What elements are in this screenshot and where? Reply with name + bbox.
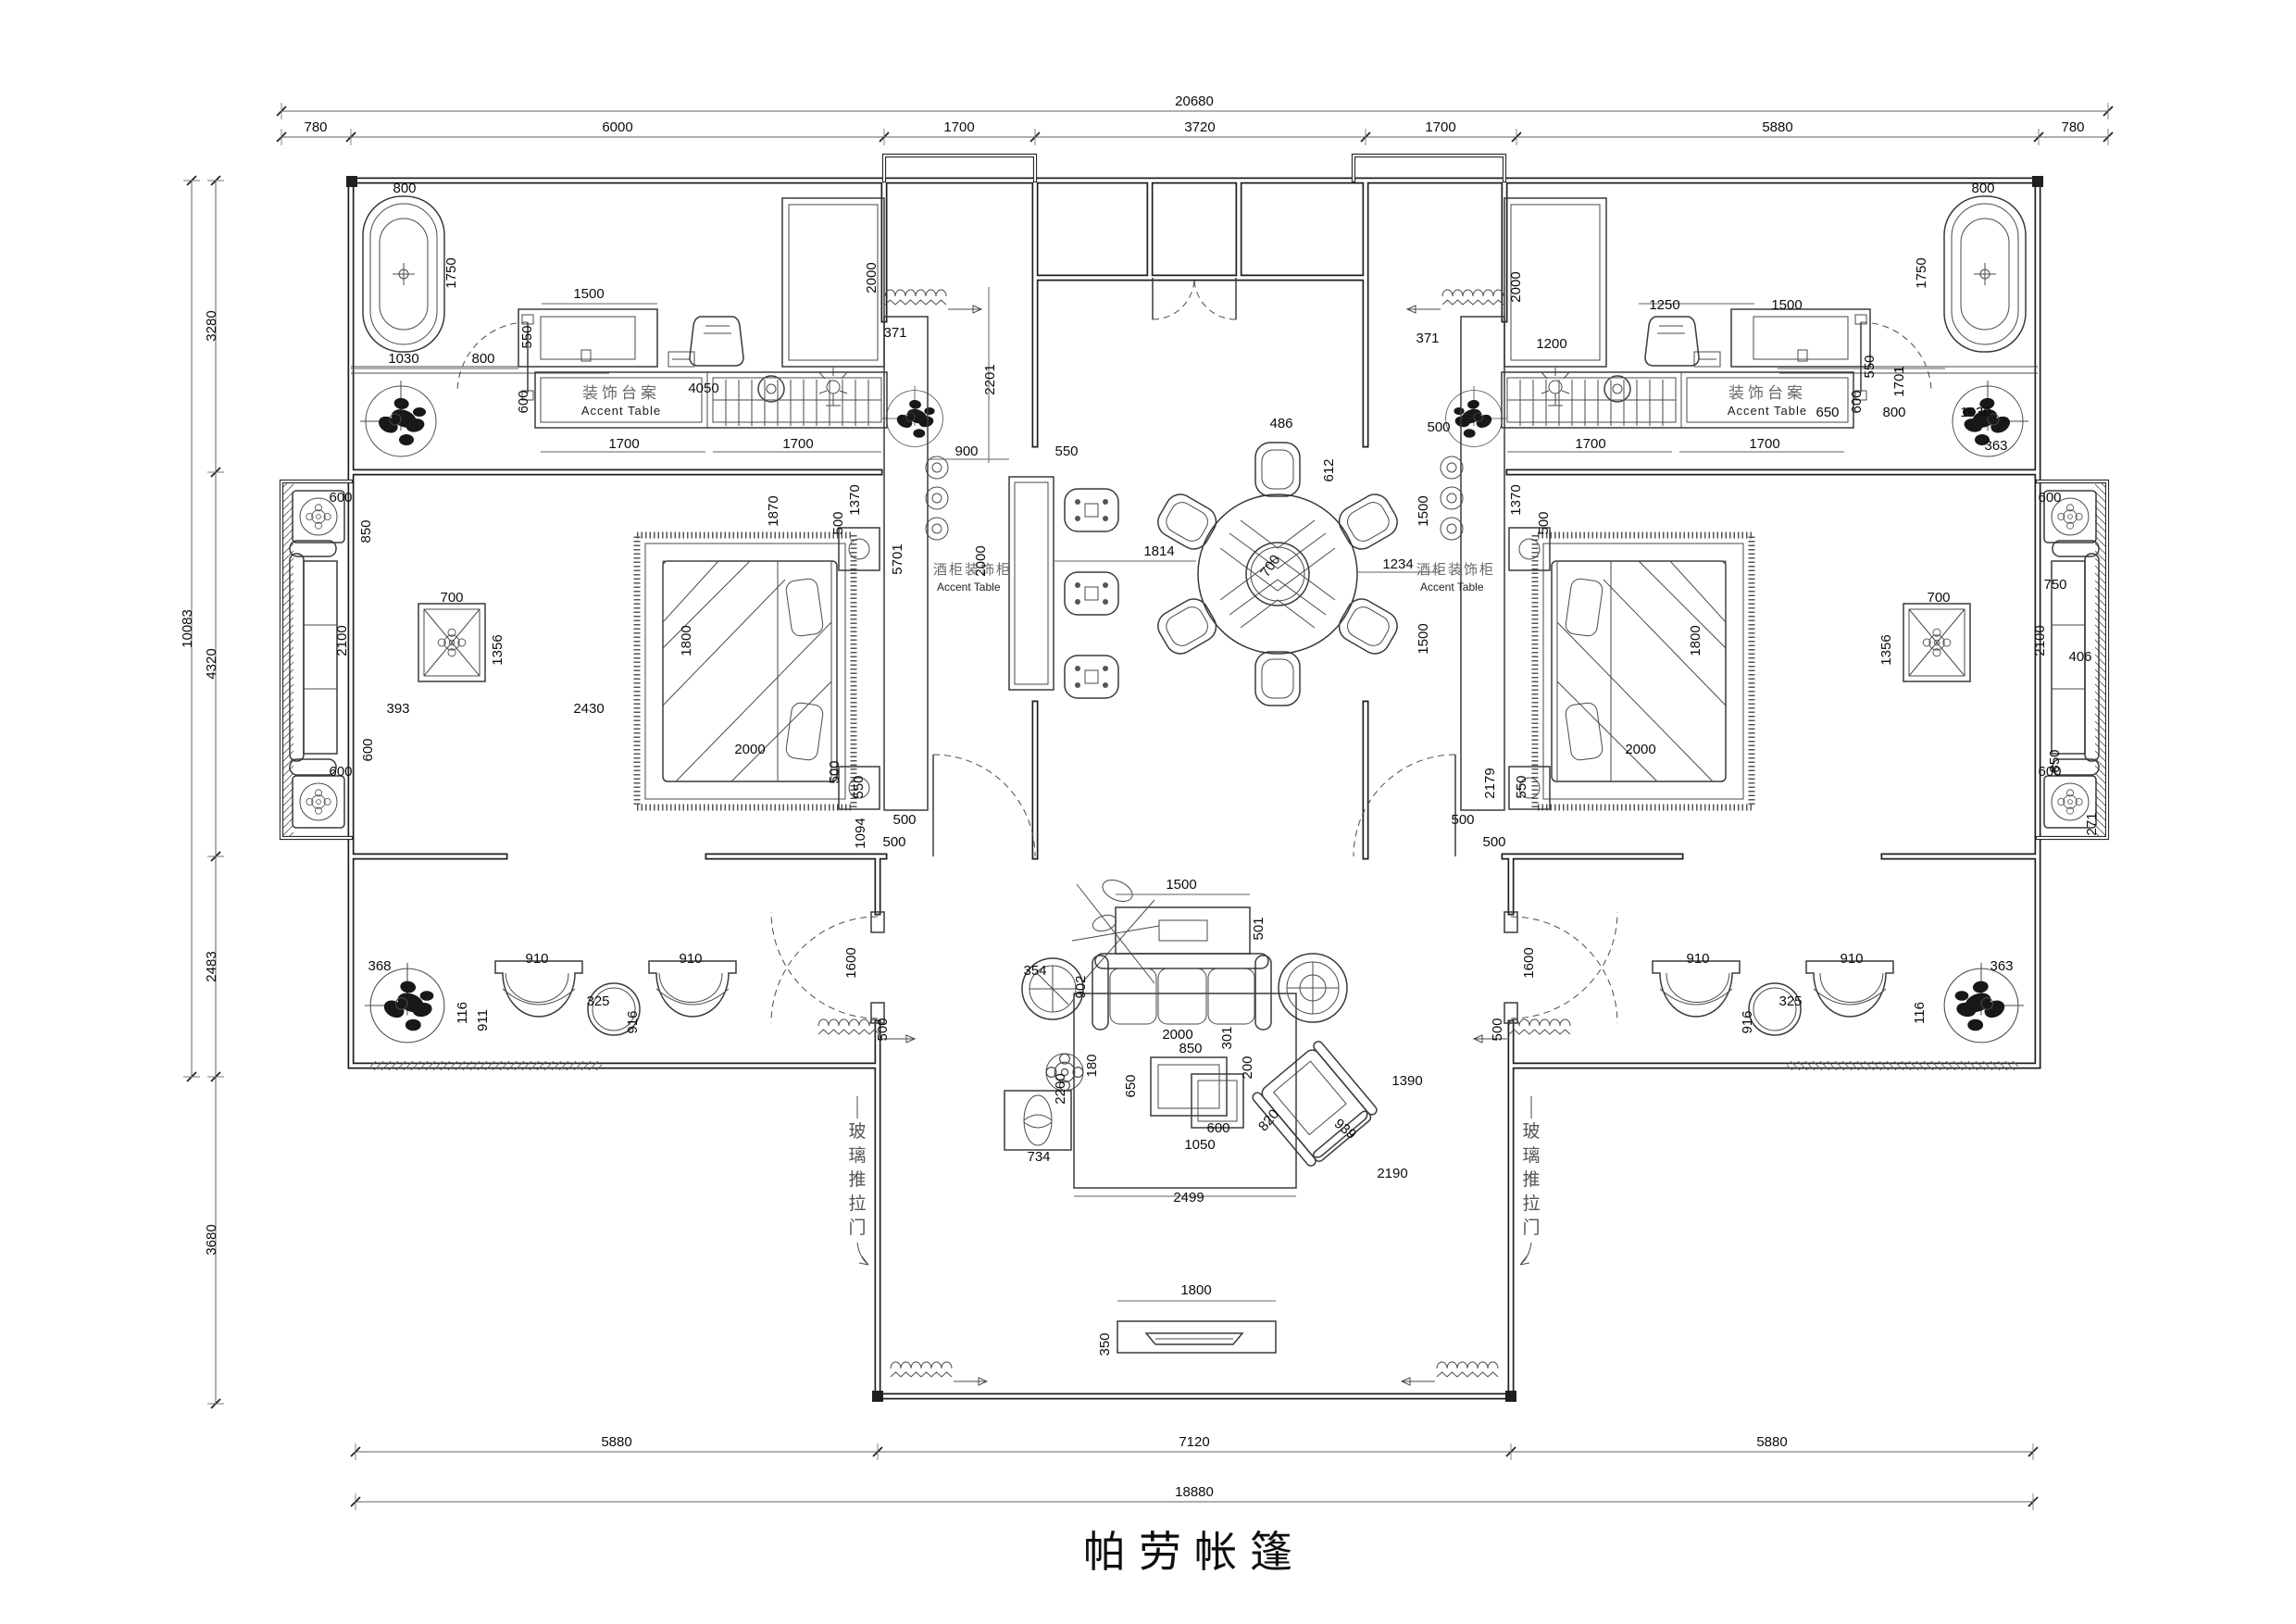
dimension-text: 902	[1073, 975, 1089, 998]
dimension-text: 1370	[1508, 484, 1524, 515]
dimension-text: 363	[1990, 958, 2013, 974]
dimension-text: 700	[1927, 590, 1950, 606]
dimension-text: 600	[329, 490, 352, 506]
dimension-text: 6000	[602, 119, 632, 135]
dimension-text: 2100	[334, 625, 350, 656]
dimension-text: 850	[1179, 1041, 1202, 1056]
dimension-text: 2000	[1508, 271, 1524, 302]
dimension-text: 500	[830, 511, 846, 534]
dimension-text: 800	[1882, 405, 1905, 420]
dimension-text: 350	[1097, 1332, 1113, 1355]
dimension-text: 368	[368, 958, 391, 974]
dimension-text: 1500	[1416, 623, 1431, 654]
dimension-text: 2100	[2032, 625, 2048, 656]
dimension-text: 2000	[1625, 742, 1655, 757]
dimension-text: 500	[1451, 812, 1474, 828]
dimension-text: 325	[1778, 993, 1802, 1009]
dimension-text: 600	[1849, 390, 1865, 413]
dimension-text: 1500	[1771, 297, 1802, 313]
dimension-text: 600	[2038, 764, 2061, 780]
dimension-text: 800	[1971, 181, 1994, 196]
dimension-text: 1390	[1391, 1073, 1422, 1089]
dimension-text: 1200	[1536, 336, 1566, 352]
dimension-text: 650	[1123, 1074, 1139, 1097]
dimension-text: 486	[1269, 416, 1292, 431]
dimension-text: 5701	[890, 543, 905, 574]
dimension-text: 500	[1427, 419, 1450, 435]
dimension-text: 5880	[1756, 1434, 1787, 1450]
floor-plan-drawing: 装饰台案 Accent Table 装饰台案 Accent Table 酒柜装饰…	[0, 0, 2296, 1624]
dimension-text: 1814	[1143, 543, 1174, 559]
dimension-text: 550	[1054, 443, 1078, 459]
dimension-text: 550	[1862, 355, 1878, 378]
dimension-text: 1356	[490, 634, 505, 665]
dimension-text: 10083	[180, 609, 195, 648]
accent-table-right-label-en: Accent Table	[1728, 404, 1807, 418]
dimension-text: 18880	[1175, 1484, 1214, 1500]
dimension-text: 116	[1912, 1002, 1928, 1024]
dimension-text: 1700	[1749, 436, 1779, 452]
dimension-text: 1870	[766, 495, 781, 526]
dimension-text: 2000	[973, 545, 989, 576]
dimension-text: 800	[471, 351, 494, 367]
dimension-text: 1356	[1878, 634, 1894, 665]
dimension-text: 4050	[688, 381, 718, 396]
dimension-text: 1800	[1688, 625, 1703, 656]
dimension-text: 5880	[1762, 119, 1792, 135]
glass-sliding-door-right-label: 玻璃推拉门	[1522, 1121, 1540, 1238]
dimension-text: 780	[2061, 119, 2084, 135]
dimension-text: 1370	[847, 484, 863, 515]
dimension-text: 500	[875, 1018, 891, 1041]
dimension-text: 5880	[601, 1434, 631, 1450]
dimension-text: 612	[1321, 458, 1337, 481]
dimension-text: 371	[1416, 331, 1439, 346]
drawing-title: 帕劳帐篷	[1083, 1527, 1305, 1577]
wine-cabinet-right-label-en: Accent Table	[1420, 581, 1484, 593]
glass-sliding-door-left-label: 玻璃推拉门	[848, 1121, 866, 1238]
dimension-text: 600	[2038, 490, 2061, 506]
dimension-text: 1500	[1416, 495, 1431, 526]
dimension-text: 916	[1740, 1010, 1755, 1033]
dimension-text: 910	[1840, 951, 1863, 967]
dimension-text: 910	[525, 951, 548, 967]
dimension-text: 780	[304, 119, 327, 135]
dimension-text: 2430	[573, 701, 604, 717]
dimension-text: 916	[625, 1010, 641, 1033]
dimension-text: 1500	[1166, 877, 1196, 893]
dimension-text: 1700	[1575, 436, 1605, 452]
dimension-text: 2200	[1053, 1073, 1068, 1104]
wine-cabinet-right-label-cn: 酒柜装饰柜	[1416, 561, 1495, 578]
dimension-text: 911	[475, 1009, 491, 1031]
dimension-text: 550	[519, 325, 535, 348]
accent-table-left-label-cn: 装饰台案	[582, 384, 660, 403]
dimension-text: 2499	[1173, 1190, 1204, 1206]
side-table	[1279, 954, 1347, 1022]
dimension-text: 363	[1984, 438, 2007, 454]
dimension-text: 500	[827, 760, 842, 783]
dimension-text: 1600	[1521, 947, 1537, 978]
dimension-text: 3280	[204, 310, 219, 341]
dimension-text: 301	[1219, 1026, 1235, 1049]
dimension-text: 20680	[1175, 94, 1214, 109]
dimension-text: 271	[2084, 812, 2100, 835]
dimension-text: 501	[1251, 917, 1267, 940]
dimension-text: 1700	[1425, 119, 1455, 135]
dimension-text: 2201	[982, 364, 998, 394]
dimension-text: 750	[2043, 577, 2066, 593]
dimension-text: 600	[329, 764, 352, 780]
dimension-text: 2000	[864, 262, 880, 293]
dimension-text: 500	[882, 834, 905, 850]
dimension-text: 1600	[843, 947, 859, 978]
dimension-text: 200	[1240, 1056, 1255, 1079]
floor-plan-page: 装饰台案 Accent Table 装饰台案 Accent Table 酒柜装饰…	[0, 0, 2296, 1624]
dimension-text: 3680	[204, 1224, 219, 1255]
dimension-text: 550	[851, 775, 867, 798]
dimension-text: 1750	[443, 257, 459, 288]
dimension-text: 2000	[734, 742, 765, 757]
dimension-text: 734	[1027, 1149, 1050, 1165]
dimension-text: 600	[516, 390, 531, 413]
dimension-text: 393	[386, 701, 409, 717]
accent-table-right-label-cn: 装饰台案	[1728, 384, 1806, 403]
dimension-text: 1050	[1184, 1137, 1215, 1153]
dimension-text: 700	[440, 590, 463, 606]
dimension-text: 1250	[1649, 297, 1679, 313]
dimension-text: 371	[883, 325, 906, 341]
dimension-text: 1030	[388, 351, 418, 367]
dimension-text: 1750	[1914, 257, 1929, 288]
dimension-text: 2179	[1482, 768, 1498, 798]
dimension-text: 500	[892, 812, 916, 828]
dimension-text: 550	[1514, 775, 1529, 798]
dimension-text: 1700	[608, 436, 639, 452]
dimension-text: 406	[2068, 649, 2091, 665]
dimension-text: 4320	[204, 648, 219, 679]
dimension-text: 2190	[1377, 1166, 1407, 1181]
dimension-text: 500	[1490, 1018, 1505, 1041]
dimension-text: 900	[955, 443, 978, 459]
dimension-text: 800	[393, 181, 416, 196]
dimension-text: 1234	[1382, 556, 1413, 572]
dimension-text: 116	[455, 1002, 470, 1024]
wine-cabinet-left-label-en: Accent Table	[937, 581, 1001, 593]
dimension-text: 1700	[782, 436, 813, 452]
dimension-text: 600	[360, 738, 376, 761]
dimension-text: 354	[1023, 963, 1046, 979]
dimension-text: 1500	[573, 286, 604, 302]
dimension-text: 910	[1686, 951, 1709, 967]
accent-table-left-label-en: Accent Table	[581, 404, 661, 418]
dimension-text: 2483	[204, 951, 219, 981]
dimension-text: 500	[1536, 511, 1552, 534]
dimension-text: 850	[358, 519, 374, 543]
dimension-text: 1094	[853, 818, 868, 848]
dimension-text: 7120	[1179, 1434, 1209, 1450]
dimension-text: 650	[1816, 405, 1839, 420]
dimension-text: 910	[679, 951, 702, 967]
dimension-text: 325	[586, 993, 609, 1009]
dimension-text: 500	[1482, 834, 1505, 850]
dimension-text: 1800	[679, 625, 694, 656]
dimension-text: 1800	[1180, 1282, 1211, 1298]
dimension-text: 1030	[1960, 405, 1990, 420]
dimension-text: 180	[1084, 1054, 1100, 1077]
dimension-text: 600	[1206, 1120, 1229, 1136]
dimension-text: 1700	[943, 119, 974, 135]
dimension-text: 3720	[1184, 119, 1215, 135]
dimension-text: 1701	[1891, 366, 1907, 396]
